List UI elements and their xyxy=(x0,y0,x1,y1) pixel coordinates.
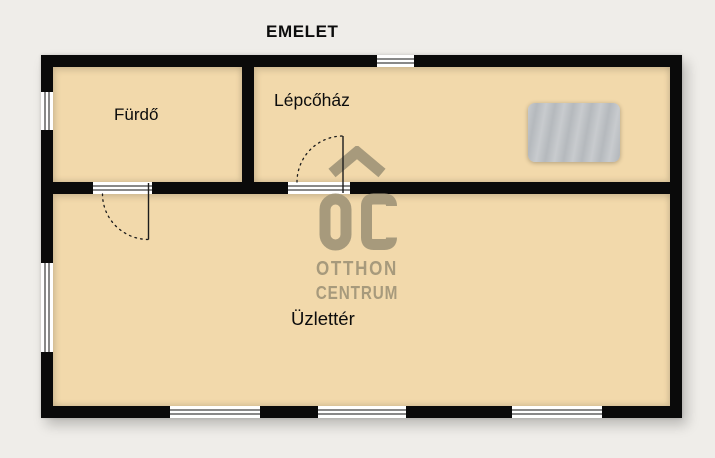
brand-logo-icon xyxy=(310,146,405,256)
brand-name-line2: CENTRUM xyxy=(272,283,442,304)
roof-icon xyxy=(332,152,382,173)
door-opening-furdo xyxy=(93,182,152,194)
room-label-uzletter: Üzlettér xyxy=(291,308,355,330)
window-bottom-wall-1 xyxy=(170,406,260,418)
room-label-lepcsohaz: Lépcőház xyxy=(274,90,350,111)
page-title: EMELET xyxy=(266,22,339,42)
window-bottom-wall-2 xyxy=(318,406,406,418)
floor-plan: EMELET OTTHON CENTRUM Fürdő Lépcőház Üzl… xyxy=(0,0,715,458)
window-left-wall-upper xyxy=(41,92,53,130)
monogram-c xyxy=(367,199,392,245)
brand-name-line1: OTTHON xyxy=(272,258,442,281)
room-label-furdo: Fürdő xyxy=(114,105,158,125)
monogram-o xyxy=(325,199,346,245)
stairs-icon xyxy=(528,103,620,162)
window-left-wall-lower xyxy=(41,263,53,352)
window-top-wall xyxy=(377,55,414,67)
window-bottom-wall-3 xyxy=(512,406,602,418)
